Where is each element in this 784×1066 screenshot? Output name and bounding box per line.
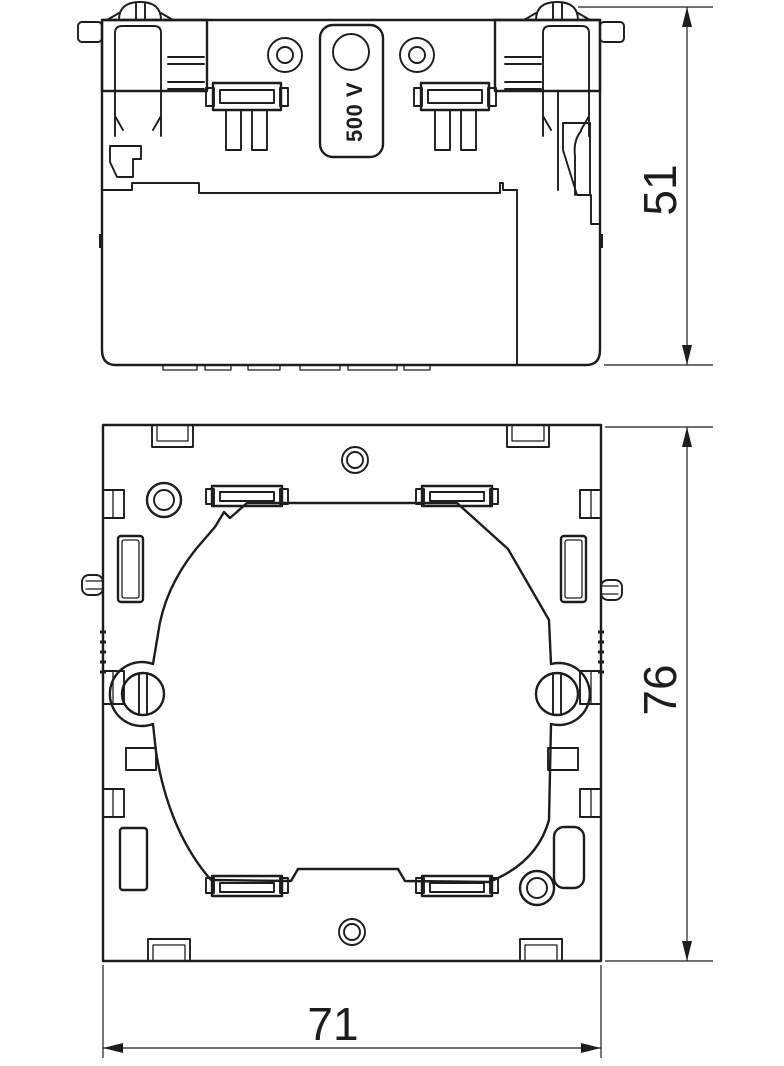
mounting-screw-left bbox=[107, 2, 173, 20]
support-screw-left bbox=[122, 673, 164, 715]
front-view bbox=[82, 425, 622, 961]
support-screw-right bbox=[536, 673, 578, 715]
housing-rungs-left bbox=[168, 57, 204, 89]
inner-tab-left bbox=[126, 748, 156, 770]
claw-slot-left bbox=[115, 26, 161, 136]
side-latch-left-bottom bbox=[103, 789, 124, 817]
fixing-hole-top-center bbox=[342, 447, 368, 473]
side-latch-left-mid bbox=[103, 671, 124, 704]
claw-foot-left bbox=[110, 146, 141, 177]
device-opening bbox=[110, 503, 590, 882]
drawing-canvas: 500 V 51 bbox=[0, 0, 784, 1066]
technical-drawing-page: 500 V 51 bbox=[0, 0, 784, 1066]
claw-window-bottom-right bbox=[554, 827, 584, 888]
claw-housing-left bbox=[102, 20, 207, 91]
side-view: 500 V bbox=[78, 2, 624, 370]
body-internal-lines bbox=[517, 91, 600, 365]
mounting-tab-bottom-right bbox=[520, 939, 562, 961]
side-latch-left-top bbox=[103, 490, 124, 518]
screw-boss-bottom-right bbox=[520, 871, 554, 905]
fixing-hole-left bbox=[268, 38, 302, 72]
side-pin-right bbox=[601, 580, 622, 600]
frame-outline bbox=[103, 425, 601, 961]
dimension-side-height-label: 51 bbox=[634, 164, 686, 215]
body-face-step bbox=[102, 183, 517, 193]
mounting-tab-top-right bbox=[507, 425, 549, 447]
dimension-front-width-label: 71 bbox=[307, 998, 358, 1050]
edge-mark-right bbox=[599, 234, 603, 248]
side-latch-right-top bbox=[580, 490, 601, 518]
screw-boss-top-left bbox=[147, 483, 181, 517]
mounting-tab-top-left bbox=[152, 425, 193, 447]
terminal-clamp-left bbox=[206, 83, 288, 150]
claw-slot-right bbox=[543, 26, 589, 136]
dimension-front-height-label: 76 bbox=[634, 664, 686, 715]
side-latch-right-bottom bbox=[580, 789, 601, 817]
center-hole bbox=[333, 34, 369, 70]
fixing-hole-right bbox=[400, 38, 434, 72]
terminal-clamp-right bbox=[414, 83, 496, 150]
mounting-screw-right bbox=[524, 2, 590, 20]
latch-bottom-right bbox=[416, 876, 498, 896]
claw-foot-right bbox=[563, 123, 590, 195]
claw-window-bottom-left bbox=[120, 828, 147, 890]
side-tab-right bbox=[600, 22, 624, 42]
dimension-front-width: 71 bbox=[103, 965, 601, 1058]
side-pin-left bbox=[82, 575, 103, 595]
dimension-front-height: 76 bbox=[605, 427, 713, 961]
inner-tab-right bbox=[548, 748, 578, 770]
mounting-tab-bottom-left bbox=[148, 939, 190, 961]
fixing-hole-bottom-center bbox=[339, 919, 365, 945]
dimension-side-height: 51 bbox=[578, 7, 713, 365]
claw-window-top-right bbox=[561, 536, 586, 602]
edge-mark-left bbox=[99, 234, 103, 248]
side-tab-left bbox=[78, 22, 102, 42]
claw-housing-right bbox=[495, 20, 600, 91]
housing-rungs-right bbox=[505, 57, 541, 89]
voltage-label: 500 V bbox=[342, 82, 367, 142]
claw-window-top-left bbox=[118, 536, 143, 602]
